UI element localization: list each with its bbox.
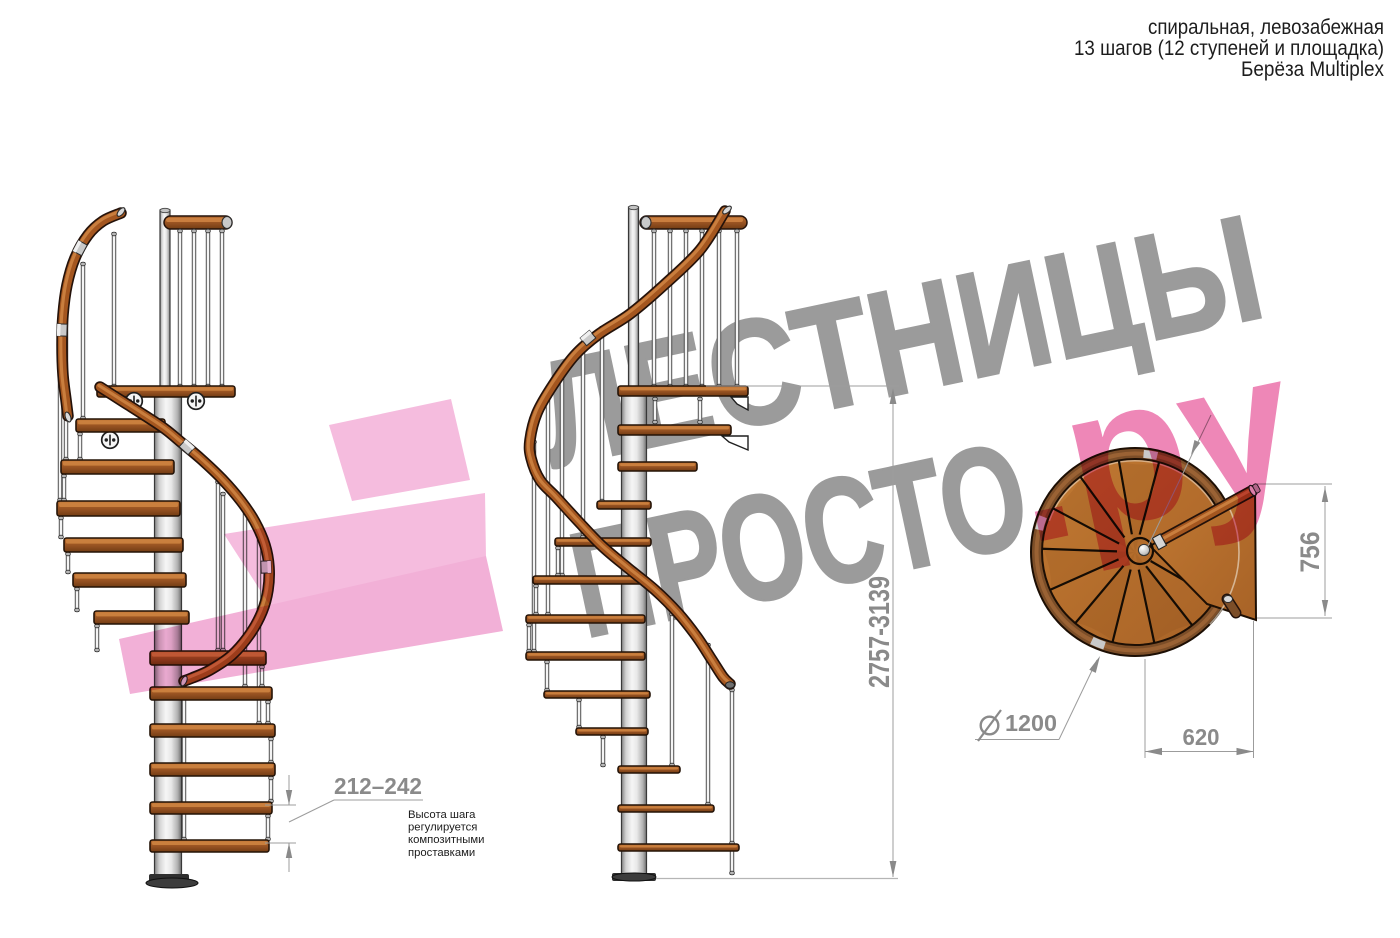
svg-text:756: 756	[1295, 532, 1325, 573]
svg-text:212–242: 212–242	[334, 773, 422, 799]
svg-text:2757-3139: 2757-3139	[864, 576, 896, 688]
svg-text:Берёза Multiplex: Берёза Multiplex	[1241, 58, 1384, 81]
svg-text:620: 620	[1183, 724, 1220, 750]
svg-text:Высота шагарегулируетсякомпози: Высота шагарегулируетсякомпозитнымипрост…	[408, 809, 485, 859]
svg-text:спиральная, левозабежная: спиральная, левозабежная	[1148, 16, 1384, 39]
svg-text:13 шагов (12 ступеней и площад: 13 шагов (12 ступеней и площадка)	[1074, 37, 1384, 60]
svg-text:1200: 1200	[1005, 710, 1057, 736]
